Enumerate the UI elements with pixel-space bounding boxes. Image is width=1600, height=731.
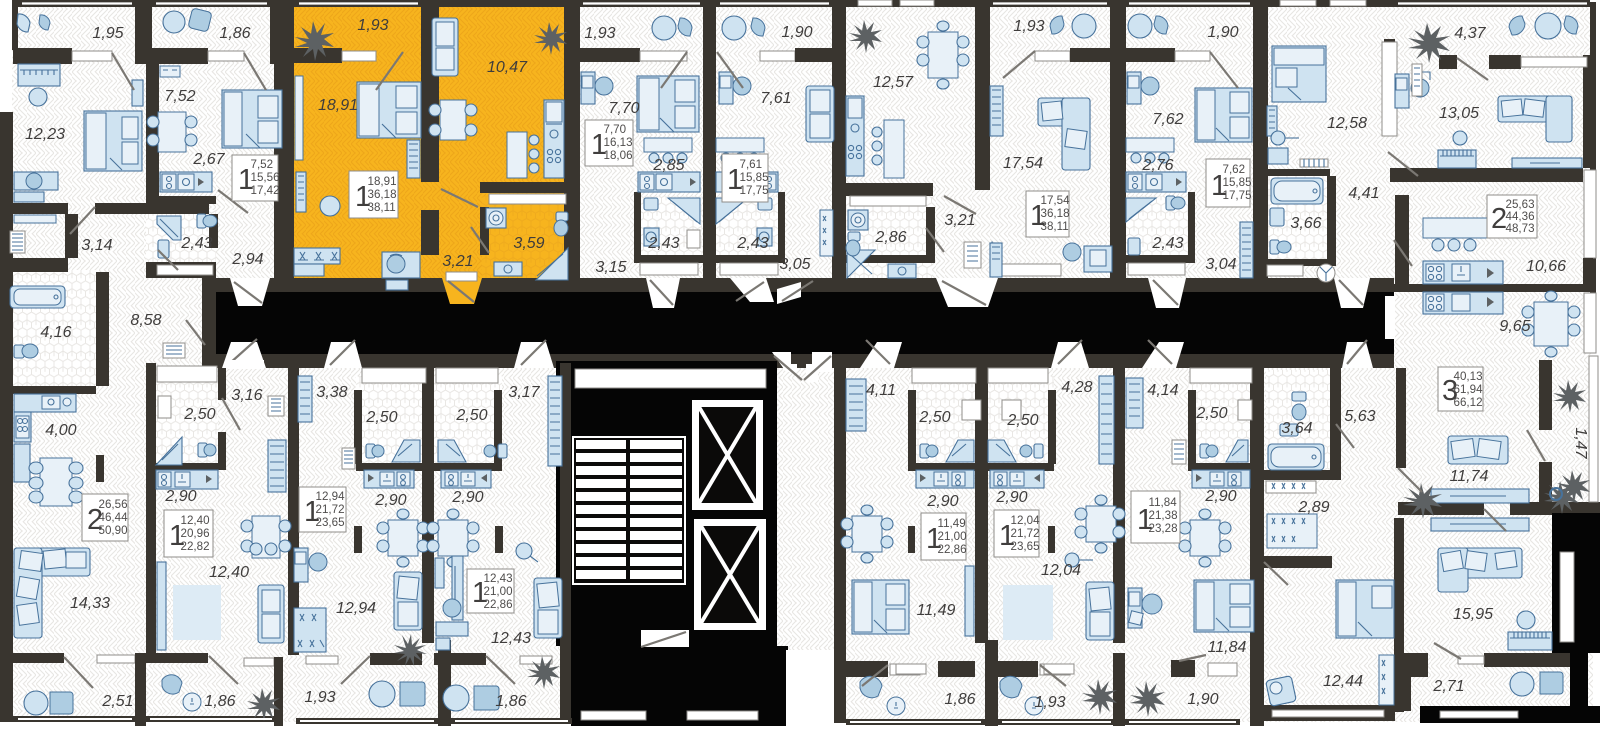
svg-text:2,43: 2,43 <box>647 235 679 252</box>
svg-text:7,62: 7,62 <box>1223 163 1246 176</box>
svg-text:4,16: 4,16 <box>40 324 71 341</box>
svg-text:66,12: 66,12 <box>1454 396 1483 409</box>
svg-text:2,90: 2,90 <box>926 493 958 510</box>
svg-text:2,43: 2,43 <box>1151 235 1183 252</box>
svg-text:23,65: 23,65 <box>316 516 345 529</box>
svg-text:17,75: 17,75 <box>1223 189 1252 202</box>
svg-text:26,56: 26,56 <box>99 498 128 511</box>
svg-text:4,11: 4,11 <box>866 382 896 399</box>
svg-text:2,50: 2,50 <box>183 406 215 423</box>
svg-text:3,38: 3,38 <box>316 384 347 401</box>
svg-text:14,33: 14,33 <box>70 595 110 612</box>
svg-text:7,61: 7,61 <box>760 90 791 107</box>
svg-text:7,52: 7,52 <box>164 88 195 105</box>
svg-text:3,17: 3,17 <box>508 384 540 401</box>
svg-text:1,93: 1,93 <box>1034 694 1065 711</box>
svg-text:2,85: 2,85 <box>652 157 684 174</box>
svg-text:17,54: 17,54 <box>1041 194 1071 207</box>
svg-text:3,66: 3,66 <box>1290 215 1321 232</box>
svg-text:15,85: 15,85 <box>740 171 769 184</box>
svg-text:1,95: 1,95 <box>92 25 123 42</box>
svg-text:2,50: 2,50 <box>365 409 397 426</box>
svg-text:2,50: 2,50 <box>1195 405 1227 422</box>
svg-text:2,71: 2,71 <box>1432 678 1464 695</box>
svg-text:1,86: 1,86 <box>219 25 250 42</box>
svg-text:7,70: 7,70 <box>604 123 627 136</box>
svg-text:17,75: 17,75 <box>740 184 769 197</box>
svg-text:23,28: 23,28 <box>1149 522 1178 535</box>
svg-text:2,51: 2,51 <box>101 693 133 710</box>
svg-text:1,47: 1,47 <box>1572 427 1589 459</box>
svg-text:4,14: 4,14 <box>1147 382 1178 399</box>
svg-text:7,70: 7,70 <box>608 100 639 117</box>
svg-text:46,44: 46,44 <box>99 511 129 524</box>
svg-text:7,61: 7,61 <box>740 158 763 171</box>
svg-text:22,86: 22,86 <box>484 598 513 611</box>
svg-text:12,44: 12,44 <box>1323 673 1363 690</box>
svg-text:3,05: 3,05 <box>779 256 810 273</box>
svg-text:1,93: 1,93 <box>584 25 615 42</box>
svg-text:3,16: 3,16 <box>231 387 262 404</box>
svg-text:2,50: 2,50 <box>455 407 487 424</box>
svg-text:22,82: 22,82 <box>181 540 210 553</box>
svg-text:21,38: 21,38 <box>1149 509 1178 522</box>
svg-text:12,94: 12,94 <box>316 490 346 503</box>
svg-text:22,86: 22,86 <box>938 543 967 556</box>
svg-text:2,50: 2,50 <box>1006 412 1038 429</box>
svg-text:12,43: 12,43 <box>484 572 513 585</box>
svg-text:10,47: 10,47 <box>487 59 528 76</box>
svg-text:1,90: 1,90 <box>781 24 812 41</box>
svg-text:2,86: 2,86 <box>874 229 906 246</box>
svg-text:3,59: 3,59 <box>513 235 544 252</box>
svg-text:11,84: 11,84 <box>1208 639 1247 656</box>
svg-text:20,96: 20,96 <box>181 527 210 540</box>
svg-text:12,58: 12,58 <box>1327 115 1367 132</box>
svg-text:1,86: 1,86 <box>204 693 235 710</box>
svg-text:23,65: 23,65 <box>1011 540 1040 553</box>
svg-text:12,43: 12,43 <box>491 630 531 647</box>
svg-text:17,54: 17,54 <box>1003 155 1043 172</box>
svg-text:2,76: 2,76 <box>1141 157 1173 174</box>
svg-text:5,63: 5,63 <box>1344 408 1375 425</box>
svg-text:3,21: 3,21 <box>944 212 975 229</box>
svg-text:2,43: 2,43 <box>180 235 212 252</box>
svg-text:1,90: 1,90 <box>1187 691 1218 708</box>
svg-text:40,13: 40,13 <box>1454 370 1483 383</box>
svg-text:21,00: 21,00 <box>484 585 513 598</box>
svg-text:3,04: 3,04 <box>1205 256 1236 273</box>
svg-text:2,90: 2,90 <box>164 488 196 505</box>
svg-text:2,43: 2,43 <box>736 235 768 252</box>
svg-text:50,90: 50,90 <box>99 524 128 537</box>
svg-text:12,40: 12,40 <box>209 564 249 581</box>
svg-text:9,65: 9,65 <box>1499 318 1530 335</box>
svg-text:12,04: 12,04 <box>1011 514 1041 527</box>
svg-text:1,93: 1,93 <box>304 689 335 706</box>
svg-text:12,23: 12,23 <box>25 126 65 143</box>
svg-text:2,90: 2,90 <box>451 489 483 506</box>
svg-text:61,94: 61,94 <box>1454 383 1484 396</box>
svg-text:11,49: 11,49 <box>917 602 956 619</box>
svg-text:2,50: 2,50 <box>918 409 950 426</box>
svg-text:21,72: 21,72 <box>1011 527 1040 540</box>
svg-text:21,72: 21,72 <box>316 503 345 516</box>
svg-text:10,66: 10,66 <box>1526 258 1566 275</box>
svg-text:12,04: 12,04 <box>1041 562 1081 579</box>
svg-text:21,00: 21,00 <box>938 530 967 543</box>
svg-text:1,90: 1,90 <box>1207 24 1238 41</box>
svg-text:1,86: 1,86 <box>944 691 975 708</box>
svg-text:2,90: 2,90 <box>1204 488 1236 505</box>
svg-text:17,42: 17,42 <box>251 184 280 197</box>
svg-text:11,84: 11,84 <box>1149 496 1178 509</box>
svg-text:2,67: 2,67 <box>192 151 225 168</box>
svg-text:8,58: 8,58 <box>130 312 161 329</box>
svg-text:36,18: 36,18 <box>368 188 397 201</box>
svg-text:12,94: 12,94 <box>336 600 376 617</box>
svg-text:7,52: 7,52 <box>251 158 274 171</box>
svg-text:3,15: 3,15 <box>595 259 626 276</box>
svg-text:36,18: 36,18 <box>1041 207 1070 220</box>
svg-text:4,00: 4,00 <box>45 422 76 439</box>
svg-text:18,06: 18,06 <box>604 149 633 162</box>
svg-text:2,90: 2,90 <box>995 489 1027 506</box>
svg-text:1,93: 1,93 <box>357 17 388 34</box>
svg-text:3,21: 3,21 <box>442 253 473 270</box>
svg-text:12,57: 12,57 <box>873 74 914 91</box>
svg-text:3,64: 3,64 <box>1281 420 1312 437</box>
svg-text:18,91: 18,91 <box>368 175 397 188</box>
svg-text:4,37: 4,37 <box>1454 25 1486 42</box>
svg-text:11,49: 11,49 <box>938 517 966 530</box>
svg-text:38,11: 38,11 <box>1041 220 1069 233</box>
svg-text:18,91: 18,91 <box>318 97 358 114</box>
svg-text:1,86: 1,86 <box>495 693 526 710</box>
svg-text:13,05: 13,05 <box>1439 105 1479 122</box>
svg-text:12,40: 12,40 <box>181 514 210 527</box>
svg-text:3,14: 3,14 <box>81 237 112 254</box>
svg-text:11,74: 11,74 <box>1450 468 1489 485</box>
svg-text:38,11: 38,11 <box>368 201 396 214</box>
svg-text:4,28: 4,28 <box>1061 379 1092 396</box>
svg-text:15,95: 15,95 <box>1453 606 1493 623</box>
svg-text:2,94: 2,94 <box>231 251 263 268</box>
svg-text:7,62: 7,62 <box>1152 111 1183 128</box>
svg-text:16,13: 16,13 <box>604 136 633 149</box>
svg-text:15,56: 15,56 <box>251 171 280 184</box>
svg-text:48,73: 48,73 <box>1506 222 1535 235</box>
svg-text:15,85: 15,85 <box>1223 176 1252 189</box>
svg-text:1,93: 1,93 <box>1013 18 1044 35</box>
svg-text:2,89: 2,89 <box>1297 499 1329 516</box>
svg-text:2,90: 2,90 <box>374 492 406 509</box>
svg-text:4,41: 4,41 <box>1348 185 1379 202</box>
